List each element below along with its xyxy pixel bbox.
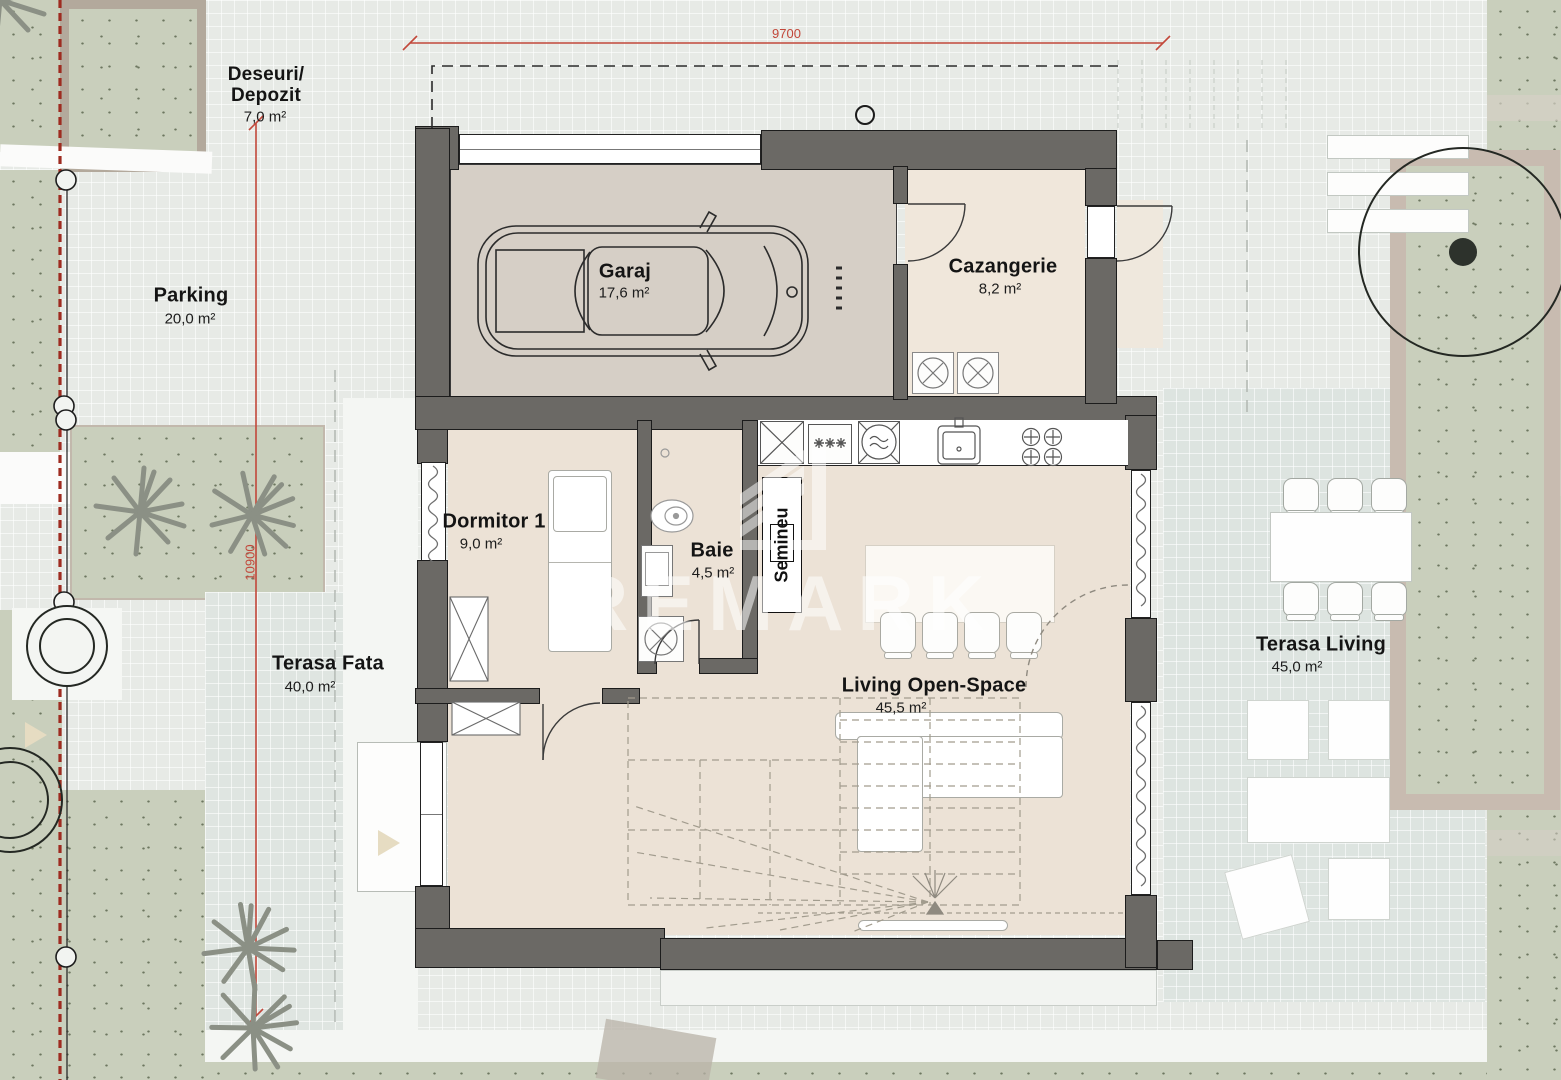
wall-west-seg2 — [417, 560, 448, 690]
bar-stool-3 — [964, 612, 1000, 654]
wall-garage-caz-bottom — [893, 264, 908, 400]
wall-baie-south-b — [699, 658, 758, 674]
entry-step-1 — [1327, 135, 1469, 159]
terrace-table — [1270, 512, 1412, 582]
wall-baie-living — [742, 420, 758, 666]
window-hall-west — [420, 742, 443, 886]
dimension-height-value: 10900 — [243, 544, 258, 580]
shower-tray — [638, 616, 684, 662]
label-cazangerie: Cazangerie — [949, 256, 1058, 279]
front-door-opening — [1087, 206, 1115, 258]
label-dormitor-area: 9,0 m² — [460, 536, 503, 553]
label-baie: Baie — [690, 540, 733, 563]
floor-garage — [450, 164, 897, 402]
lounge-pad-wide — [1247, 777, 1390, 843]
terrace-chair-4 — [1283, 582, 1319, 616]
walkway-south — [205, 1030, 1487, 1064]
label-cazangerie-area: 8,2 m² — [979, 281, 1022, 298]
label-living-area: 45,5 m² — [876, 700, 927, 717]
lounge-pad-3 — [1328, 858, 1390, 920]
window-living-east-1 — [1131, 470, 1151, 618]
terrace-chair-3 — [1371, 478, 1407, 512]
walkway-west — [343, 398, 418, 1032]
window-living-east-2 — [1131, 702, 1151, 895]
label-baie-area: 4,5 m² — [692, 565, 735, 582]
tv-console — [858, 920, 1008, 931]
bar-stool-4 — [1006, 612, 1042, 654]
entry-step-2 — [1327, 172, 1469, 196]
terrace-chair-2 — [1327, 478, 1363, 512]
wall-dorm-hall-a — [415, 688, 540, 704]
vegetation-bottom-left — [0, 790, 205, 1080]
label-terasa-fata: Terasa Fata — [272, 653, 384, 676]
boiler-unit-2 — [957, 352, 999, 394]
terrace-chair-5 — [1327, 582, 1363, 616]
right-strip-band-3 — [1487, 830, 1561, 856]
wall-east-living-bottom — [1125, 895, 1157, 968]
terrace-chair-1 — [1283, 478, 1319, 512]
well-pad — [12, 608, 122, 700]
label-living: Living Open-Space — [842, 675, 1027, 698]
lounge-pad-1 — [1247, 700, 1309, 760]
tree-bed — [1406, 166, 1544, 794]
label-parking: Parking — [154, 285, 229, 308]
wall-east-living-mid — [1125, 618, 1157, 702]
vegetation-bottom-strip — [205, 1062, 1487, 1080]
wall-south-west — [415, 928, 665, 968]
bar-stool-1 — [880, 612, 916, 654]
wall-east-caz-top — [1085, 168, 1117, 206]
right-strip-band-1 — [1487, 95, 1561, 121]
sofa-chaise — [857, 736, 923, 852]
label-deseuri-line1: Deseuri/ — [228, 64, 305, 86]
south-step-band — [660, 970, 1157, 1006]
wall-west-garage — [415, 128, 450, 420]
label-garaj: Garaj — [599, 261, 651, 284]
label-deseuri-area: 7,0 m² — [244, 109, 287, 126]
label-semineu: Semineu — [772, 507, 793, 582]
dimension-width-value: 9700 — [772, 26, 801, 41]
label-deseuri-line2: Depozit — [231, 85, 301, 107]
terrace-chair-6 — [1371, 582, 1407, 616]
wall-dorm-hall-b — [602, 688, 640, 704]
label-terasa-fata-area: 40,0 m² — [285, 679, 336, 696]
bath-vanity-basin — [645, 552, 669, 586]
boiler-unit-1 — [912, 352, 954, 394]
wall-east-caz-bottom — [1085, 258, 1117, 404]
bed-pillow — [553, 476, 607, 532]
wall-top-east — [761, 130, 1117, 170]
site-plan: REMARK Deseuri/ Depozit 7,0 m² Parking 2… — [0, 0, 1561, 1080]
wall-east-living-top — [1125, 415, 1157, 470]
entry-porch — [1117, 200, 1163, 348]
lounge-pad-2 — [1328, 700, 1390, 760]
garage-door-band — [459, 134, 761, 164]
label-dormitor: Dormitor 1 — [442, 511, 545, 534]
label-terasa-living-area: 45,0 m² — [1272, 659, 1323, 676]
vegetation-left-upper — [0, 170, 60, 452]
entry-step-3 — [1327, 209, 1469, 233]
oven — [858, 421, 900, 464]
pillar-south-east — [1157, 940, 1193, 970]
marker-triangle-porch — [378, 830, 400, 856]
bar-stool-2 — [922, 612, 958, 654]
label-terasa-living: Terasa Living — [1256, 634, 1386, 657]
wall-south-living — [660, 938, 1157, 970]
path-left — [0, 452, 70, 504]
bed-fold-line — [549, 562, 611, 563]
label-garaj-area: 17,6 m² — [599, 285, 650, 302]
wall-garage-caz-top — [893, 166, 908, 204]
marker-triangle-left — [25, 722, 47, 748]
fridge — [760, 421, 804, 464]
label-parking-area: 20,0 m² — [165, 311, 216, 328]
freezer — [808, 424, 852, 464]
planting-bed-left — [70, 425, 325, 600]
